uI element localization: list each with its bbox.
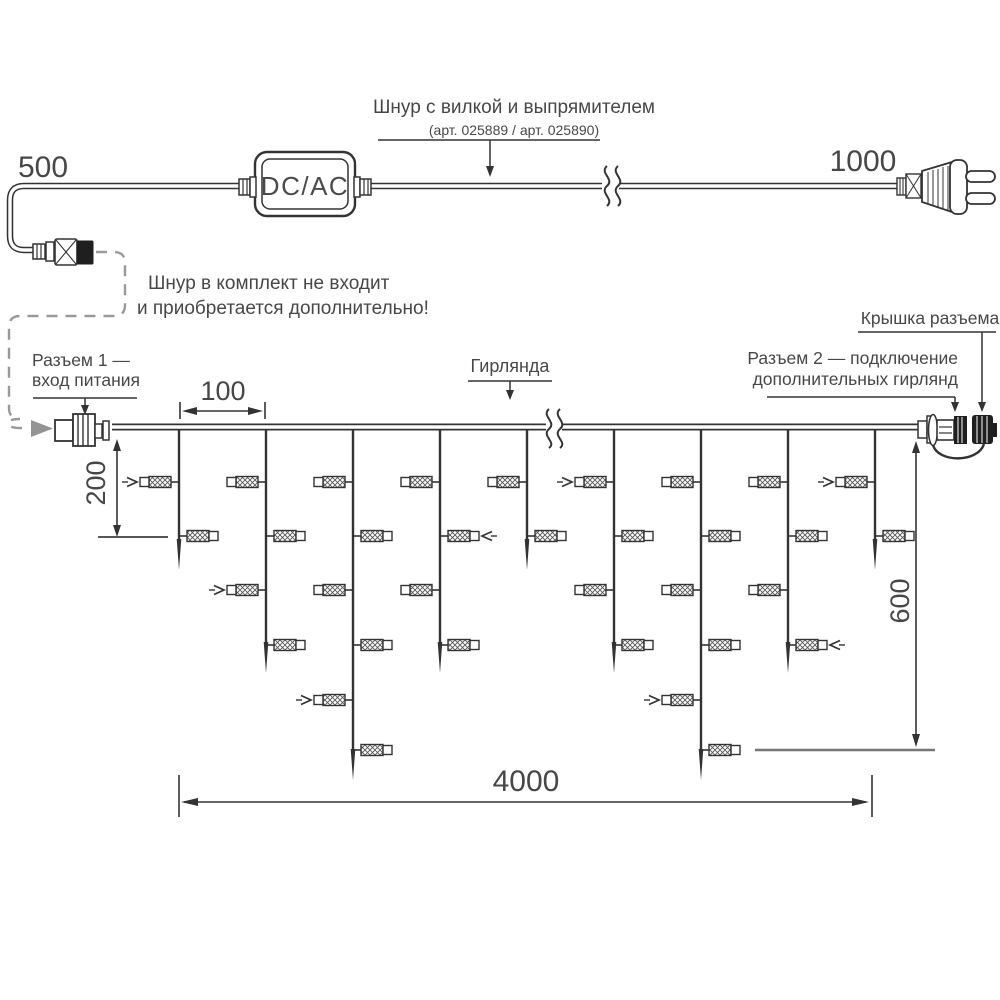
garland-drop (836, 429, 914, 570)
dim-100: 100 (180, 376, 265, 419)
garland-drop (227, 429, 305, 673)
garland-drop (140, 429, 218, 570)
lamp-icon (662, 585, 701, 596)
lamp-icon (701, 745, 740, 756)
lamp-icon (575, 585, 614, 596)
converter-label: DC/AC (261, 171, 349, 201)
lamp-icon (662, 477, 701, 488)
garland-drop (401, 429, 479, 673)
lamp-direction-arrow-icon (296, 696, 311, 705)
garland-break-icon (547, 409, 563, 448)
power-cord (10, 166, 899, 250)
lamp-icon (266, 531, 305, 542)
lamp-direction-arrow-icon (818, 478, 833, 487)
connector1 (55, 414, 109, 446)
lamp-icon (227, 585, 266, 596)
connector2-callout: Разъем 2 — подключение дополнительных ги… (747, 348, 959, 412)
note-line1: Шнур в комплект не входит (148, 273, 390, 294)
cap-tether (933, 444, 984, 458)
lamp-icon (575, 477, 614, 488)
lamp-icon (788, 531, 827, 542)
cord-callout-articles: (арт. 025889 / арт. 025890) (429, 122, 599, 138)
dim-1000-label: 1000 (830, 145, 897, 178)
dim-4000: 4000 (179, 765, 872, 817)
lamp-icon (314, 585, 353, 596)
diagram-svg: DC/AC 500 1000 Шнур с вилк (0, 0, 1000, 1000)
lamp-icon (179, 531, 218, 542)
connector2-label-line2: дополнительных гирлянд (753, 369, 958, 389)
dim-600-label: 600 (885, 578, 915, 623)
cord-left-segment (10, 186, 243, 250)
lamp-icon (401, 477, 440, 488)
dim-100-label: 100 (200, 376, 245, 406)
cord-callout-arrow-icon (486, 166, 494, 177)
connector1-callout: Разъем 1 — вход питания (32, 350, 140, 415)
lamp-icon (353, 531, 392, 542)
cord-callout: Шнур с вилкой и выпрямителем (арт. 02588… (373, 97, 655, 177)
cord-end-connector (33, 239, 93, 265)
lamp-direction-arrow-icon (557, 478, 572, 487)
garland-drops (122, 429, 914, 780)
dashed-path-arrow-icon (31, 420, 53, 437)
lamp-icon (353, 745, 392, 756)
power-plug (897, 160, 995, 214)
cord-callout-title: Шнур с вилкой и выпрямителем (373, 97, 655, 118)
not-included-dashed-path (9, 252, 125, 437)
garland-drop (488, 429, 566, 570)
dim-200-label: 200 (81, 460, 111, 505)
lamp-icon (836, 477, 875, 488)
not-included-note: Шнур в комплект не входит и приобретаетс… (137, 273, 429, 319)
lamp-icon (488, 477, 527, 488)
lamp-icon (749, 585, 788, 596)
dim-500-label: 500 (18, 151, 68, 184)
lamp-direction-arrow-icon (122, 478, 137, 487)
cord-left-core (10, 186, 243, 250)
lamp-direction-arrow-icon (209, 586, 224, 595)
lamp-icon (353, 640, 392, 651)
garland-wire (112, 409, 920, 448)
note-line2: и приобретается дополнительно! (137, 298, 429, 319)
garland-drop (575, 429, 653, 673)
lamp-direction-arrow-icon (830, 641, 845, 650)
lamp-icon (527, 531, 566, 542)
garland-label: Гирлянда (471, 356, 551, 376)
garland-drop (314, 429, 392, 780)
lamp-icon (662, 695, 701, 706)
connector1-label-line2: вход питания (32, 370, 140, 390)
lamp-icon (440, 640, 479, 651)
lamp-direction-arrow-icon (482, 532, 497, 541)
connector1-label-line1: Разъем 1 — (32, 350, 130, 370)
lamp-icon (875, 531, 914, 542)
lamp-icon (701, 640, 740, 651)
converter-connector-left (239, 177, 256, 197)
dc-ac-converter: DC/AC (239, 152, 371, 216)
lamp-icon (401, 585, 440, 596)
garland-drop (749, 429, 827, 673)
connector2-callout-arrow-icon (951, 402, 959, 412)
lamp-icon (140, 477, 179, 488)
lamp-icon (266, 640, 305, 651)
lamp-icon (701, 531, 740, 542)
lamp-icon (314, 477, 353, 488)
dim-4000-label: 4000 (493, 765, 560, 798)
cap-callout-arrow-icon (978, 402, 986, 412)
cord-break-icon (605, 166, 621, 206)
connector-cap (972, 415, 997, 444)
lamp-icon (614, 640, 653, 651)
lamp-icon (314, 695, 353, 706)
garland-callout-arrow-icon (506, 390, 514, 400)
lamp-icon (440, 531, 479, 542)
garland-callout: Гирлянда (468, 356, 552, 400)
cap-label: Крышка разъема (861, 308, 1000, 328)
garland-drop (662, 429, 740, 780)
lamp-icon (614, 531, 653, 542)
connector2 (918, 415, 997, 459)
lamp-icon (227, 477, 266, 488)
lamp-icon (749, 477, 788, 488)
lamp-direction-arrow-icon (644, 696, 659, 705)
converter-connector-right (354, 177, 371, 197)
connector2-label-line1: Разъем 2 — подключение (747, 348, 958, 368)
lamp-icon (788, 640, 827, 651)
